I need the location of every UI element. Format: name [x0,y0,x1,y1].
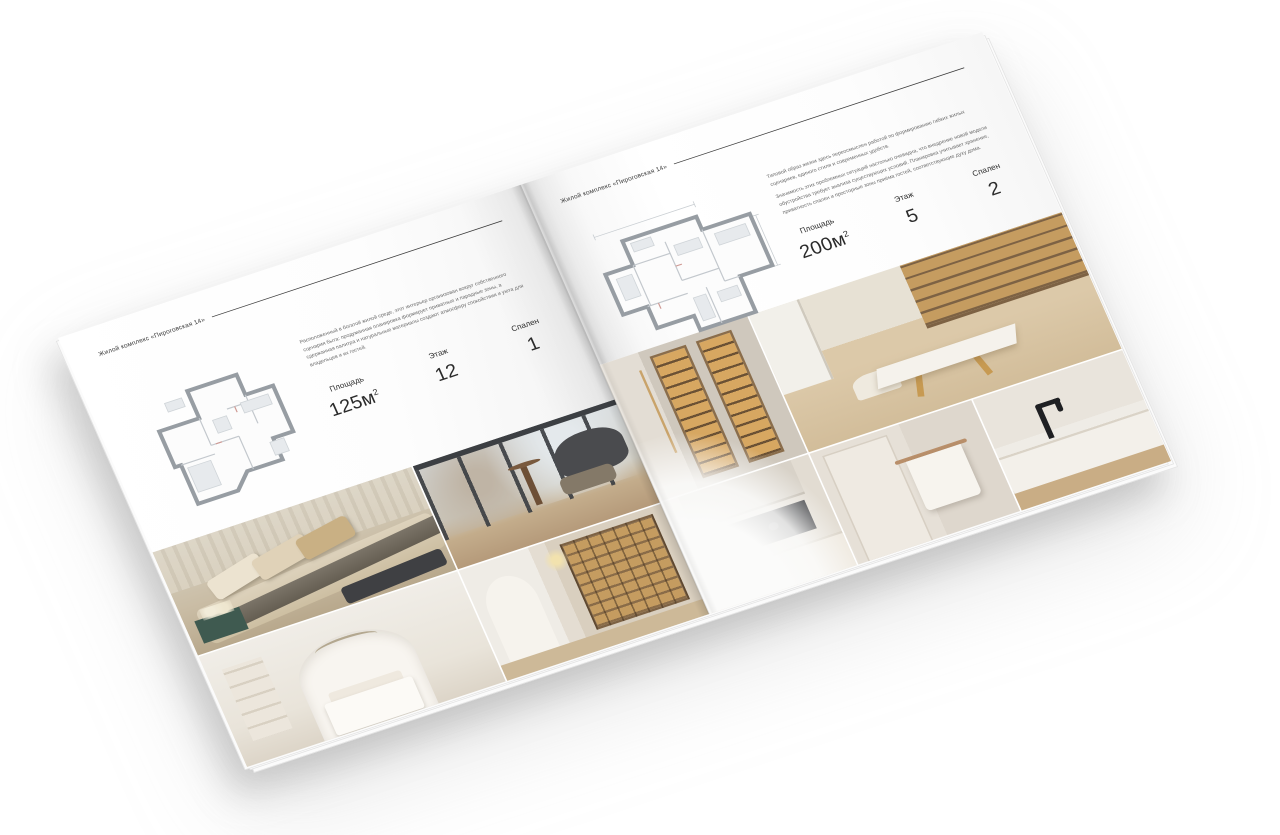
black-faucet [1035,403,1055,438]
spec-floor: Этаж 12 [417,344,472,390]
desk-leg [973,354,993,375]
wall-shelves [222,657,292,741]
project-title: Жилой комплекс «Пироговская 14» [559,163,668,205]
spec-bedrooms: Спален 2 [965,159,1020,205]
spec-floor: Этаж 5 [882,187,937,233]
plan-walls [147,366,309,506]
white-desk [877,323,1017,389]
black-faucet [1053,397,1064,412]
magazine-spread: Жилой комплекс «Пироговская 14» [58,32,1171,767]
magazine-scene: Жилой комплекс «Пироговская 14» [0,0,1280,835]
spec-area: Площадь 125м2 [320,372,384,421]
spec-bedrooms: Спален 1 [504,315,559,361]
photo-backdrop: Жилой комплекс «Пироговская 14» [0,0,1280,835]
project-title: Жилой комплекс «Пироговская 14» [97,316,206,358]
spec-area: Площадь 200м2 [791,214,855,263]
desk-leg [915,374,924,396]
